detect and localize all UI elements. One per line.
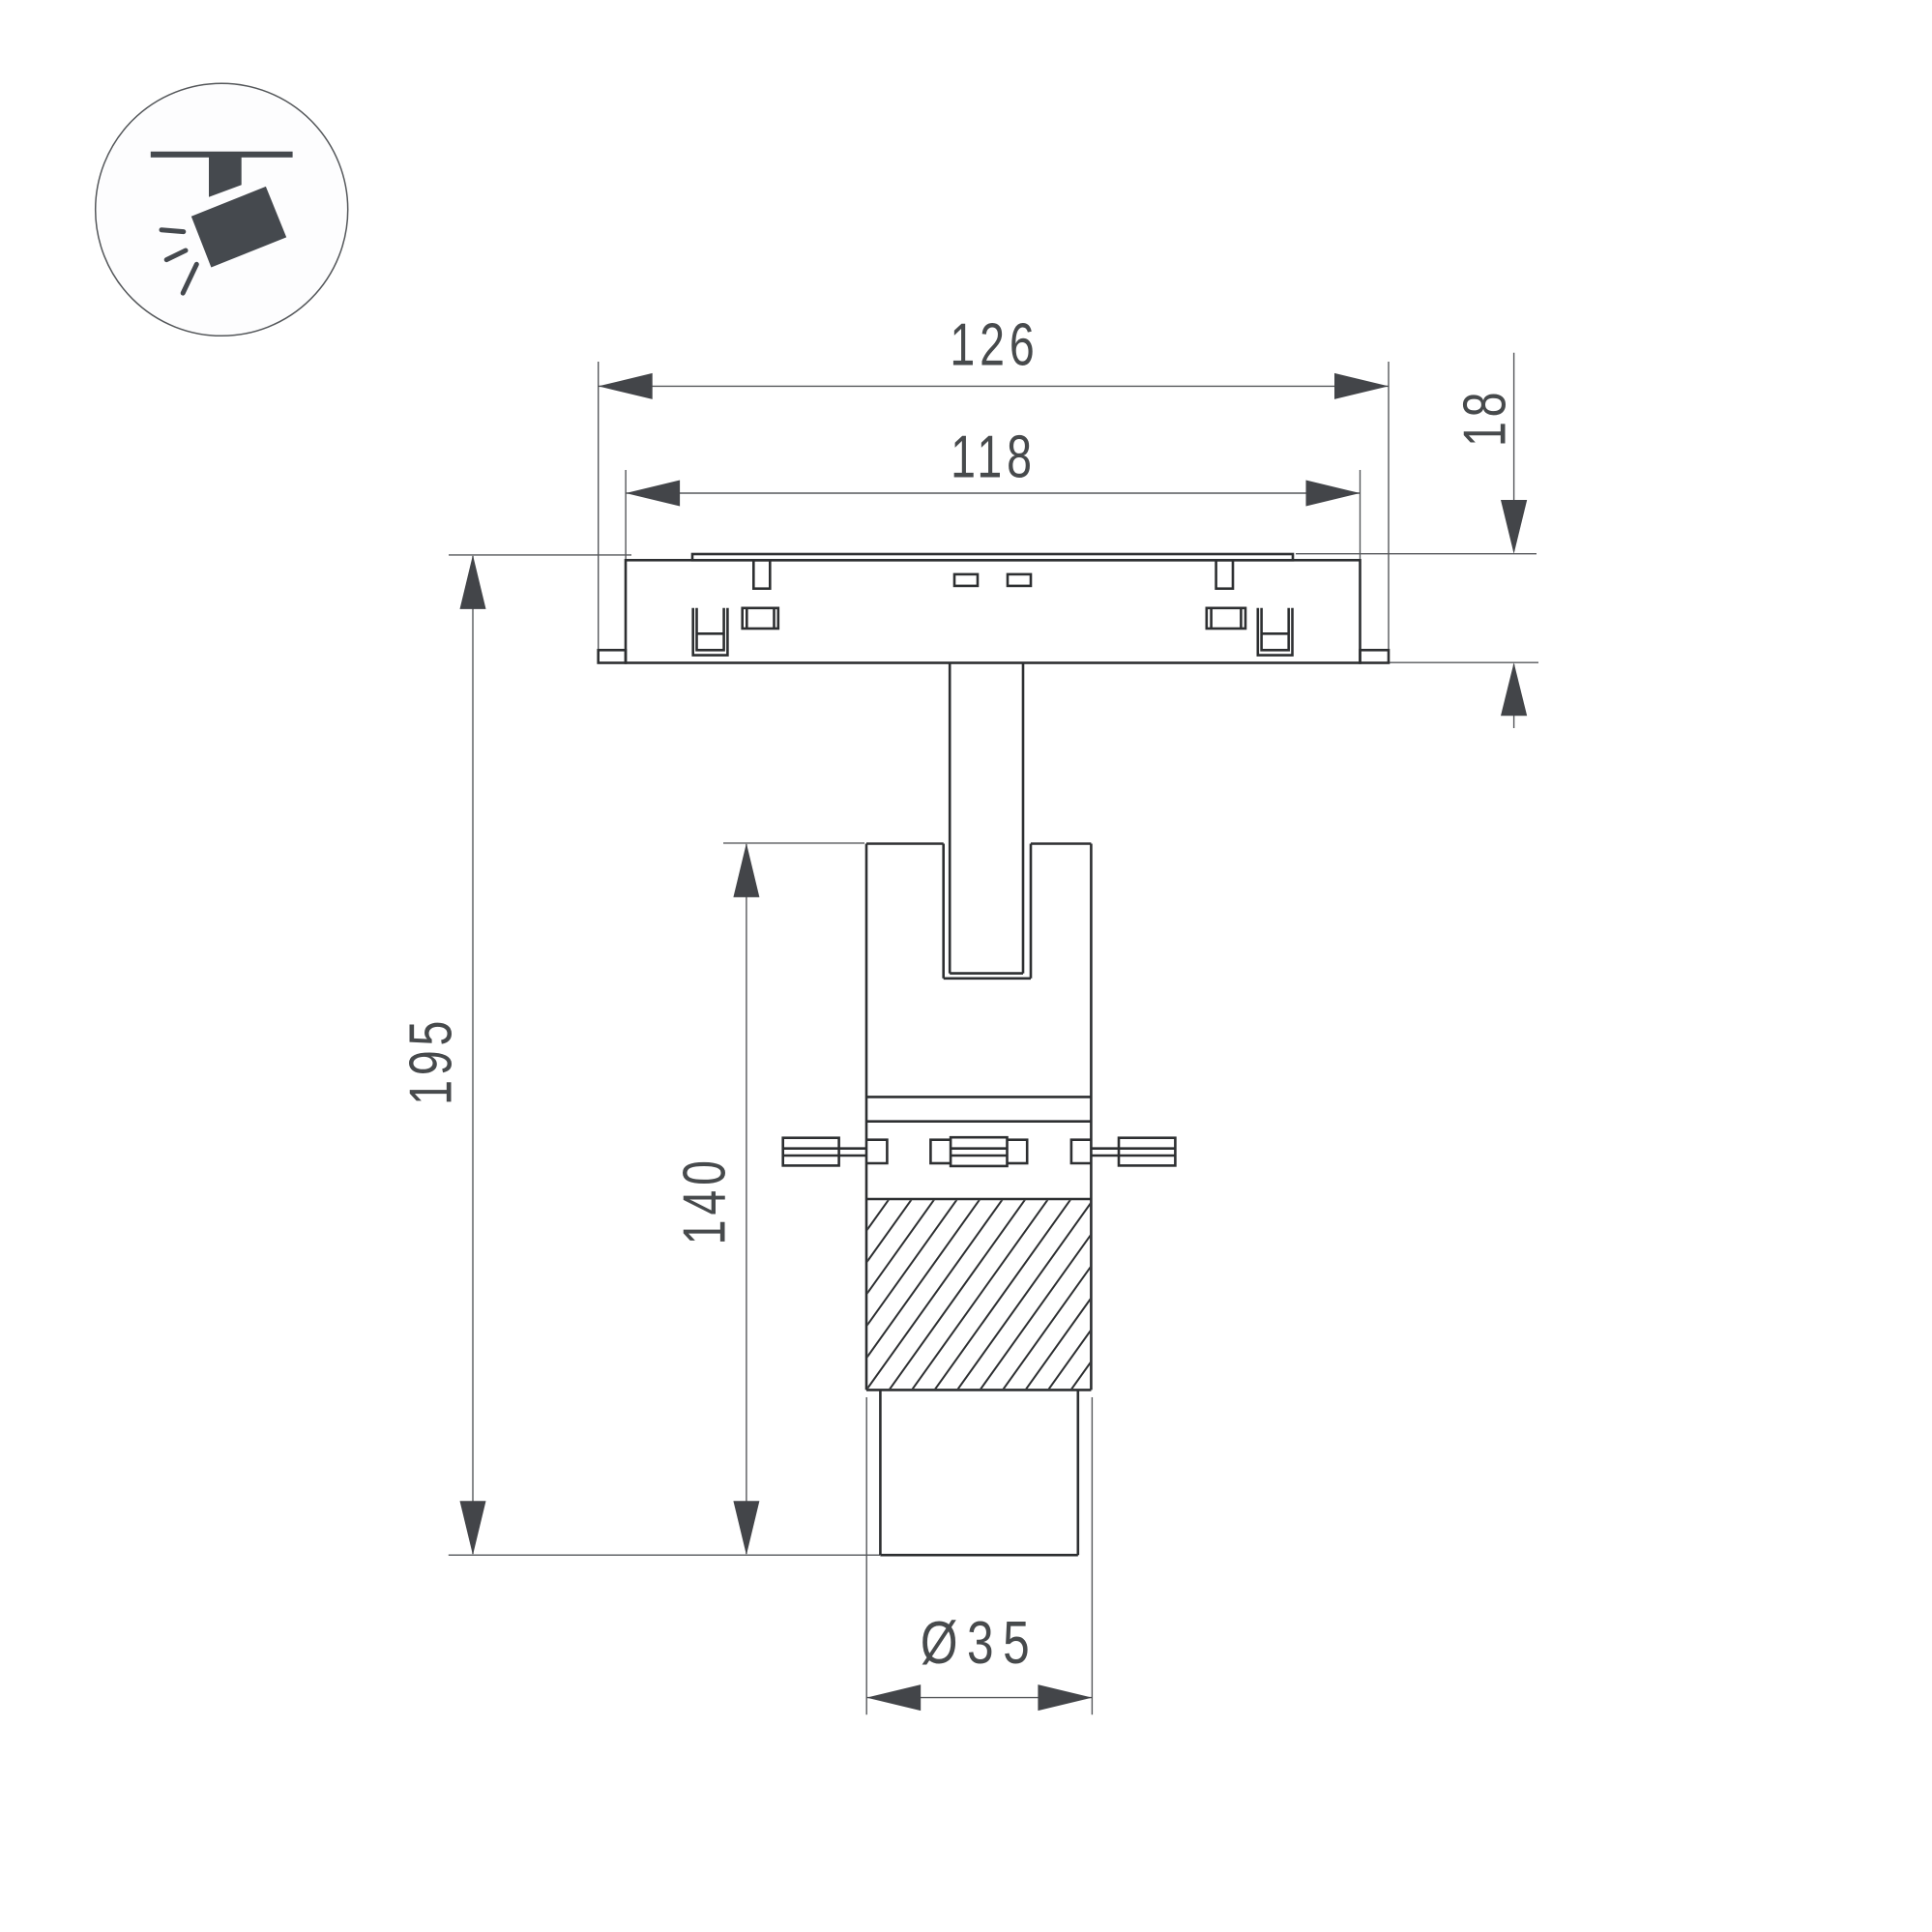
svg-text:126: 126: [950, 310, 1039, 378]
svg-text:195: 195: [396, 1016, 464, 1105]
svg-text:118: 118: [951, 423, 1037, 490]
svg-text:18: 18: [1450, 388, 1518, 447]
svg-text:Ø35: Ø35: [921, 1609, 1039, 1677]
svg-text:140: 140: [670, 1156, 738, 1244]
